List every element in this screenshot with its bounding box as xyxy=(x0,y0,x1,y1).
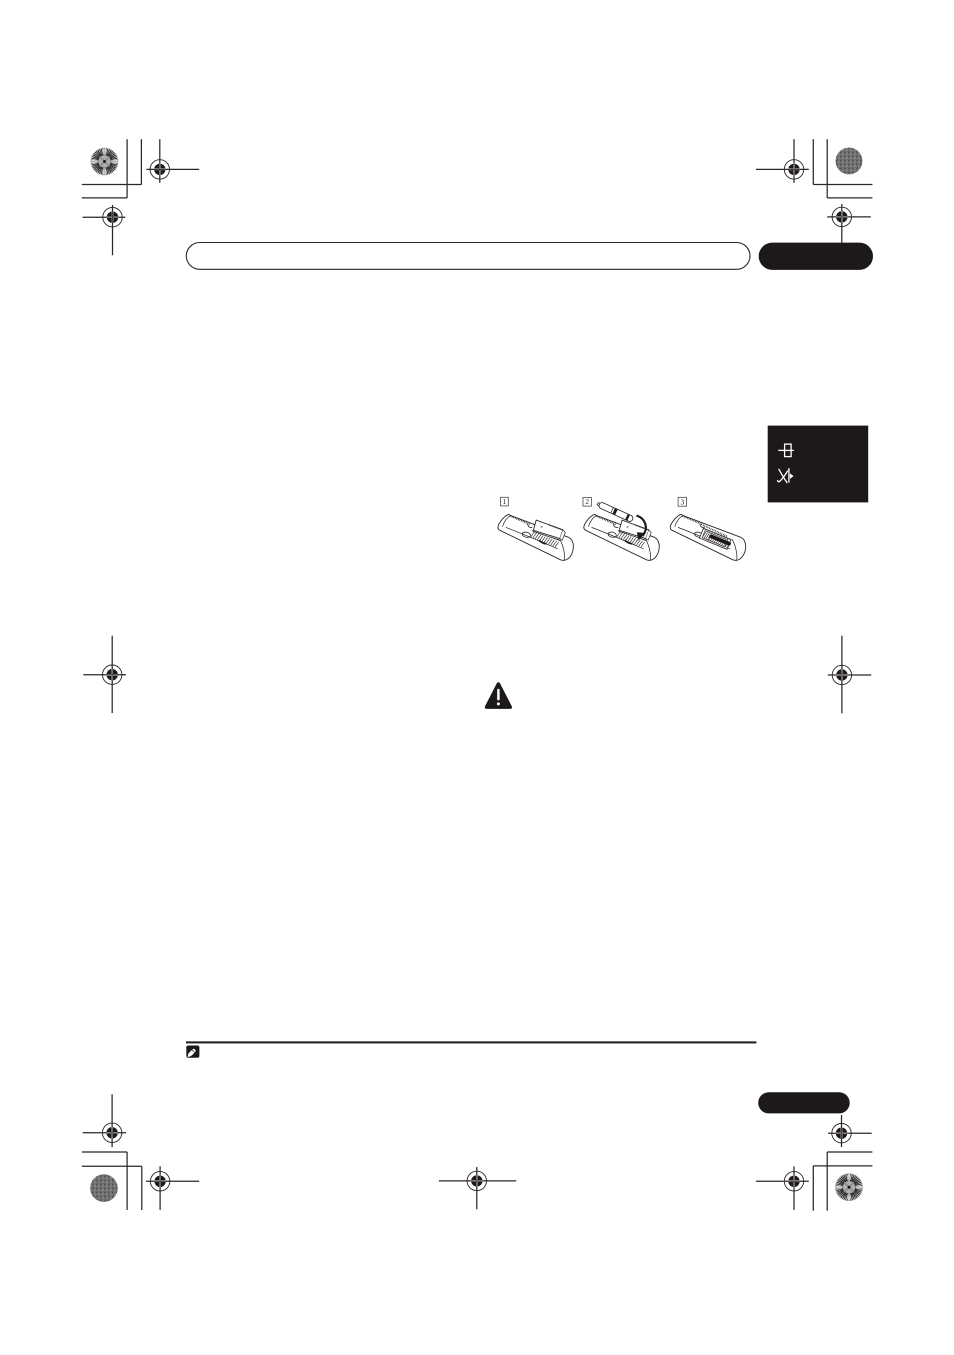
svg-text:3: 3 xyxy=(681,498,685,506)
svg-text:2: 2 xyxy=(585,498,589,506)
svg-text:1: 1 xyxy=(503,498,507,506)
